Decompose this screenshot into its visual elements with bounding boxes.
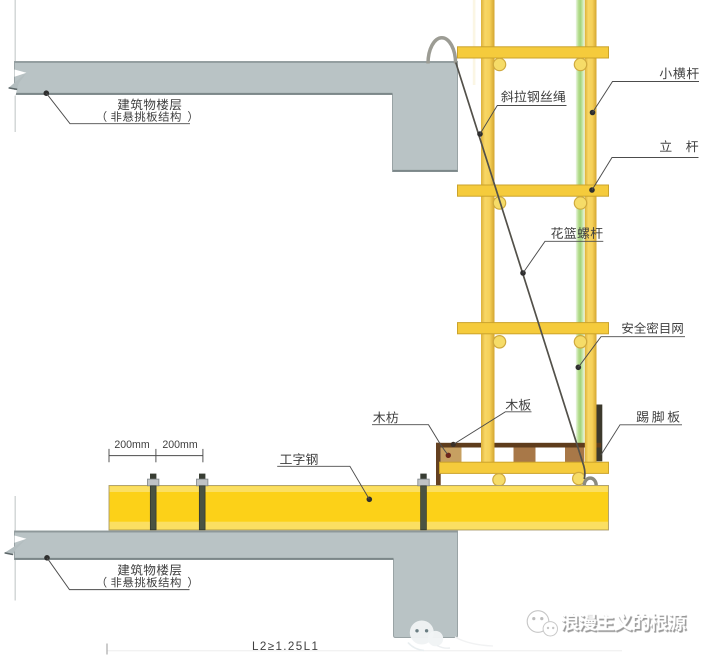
svg-text:200mm: 200mm [162,439,197,451]
svg-text:200mm: 200mm [114,439,149,451]
svg-text:L2≥1.25L1: L2≥1.25L1 [252,640,319,653]
